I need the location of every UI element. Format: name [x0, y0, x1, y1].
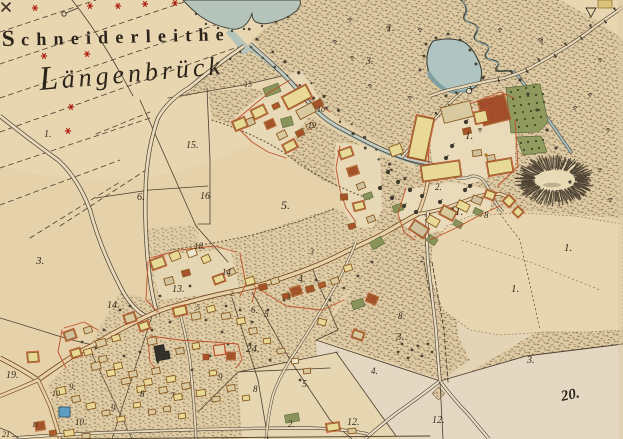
svg-text:1.: 1.	[465, 130, 473, 142]
svg-text:8: 8	[253, 384, 258, 394]
svg-text:6.: 6.	[251, 305, 258, 315]
svg-text:1: 1	[540, 37, 544, 46]
svg-text:1.: 1.	[511, 283, 519, 295]
svg-text:7: 7	[170, 391, 175, 401]
svg-text:9: 9	[111, 403, 116, 413]
svg-text:13.: 13.	[172, 284, 185, 295]
svg-text:19.: 19.	[6, 370, 19, 381]
svg-text:4.: 4.	[298, 274, 306, 285]
svg-text:10: 10	[317, 105, 325, 114]
svg-text:5.: 5.	[302, 379, 310, 390]
svg-text:15: 15	[244, 80, 252, 89]
svg-text:3.: 3.	[365, 56, 374, 67]
svg-text:1.: 1.	[455, 206, 463, 218]
svg-text:12.: 12.	[347, 417, 360, 428]
svg-text:8: 8	[140, 389, 145, 399]
svg-text:21: 21	[2, 430, 10, 439]
svg-text:1.: 1.	[387, 23, 395, 34]
svg-text:3: 3	[286, 293, 291, 302]
svg-text:5.: 5.	[281, 198, 290, 212]
svg-text:4.: 4.	[371, 366, 378, 376]
svg-text:8: 8	[484, 210, 489, 220]
svg-text:3.: 3.	[35, 255, 44, 267]
svg-text:1.: 1.	[44, 129, 52, 140]
svg-text:16: 16	[200, 191, 210, 202]
svg-text:2.: 2.	[435, 182, 442, 192]
svg-text:19,: 19,	[308, 121, 318, 130]
svg-text:18.: 18.	[194, 241, 205, 251]
svg-text:10.: 10.	[75, 417, 86, 427]
svg-text:8: 8	[398, 311, 403, 321]
svg-text:14: 14	[222, 267, 232, 277]
svg-text:9.: 9.	[69, 382, 76, 392]
svg-text:2: 2	[230, 290, 234, 298]
svg-text:11: 11	[32, 421, 38, 429]
svg-text:3.: 3.	[526, 355, 535, 366]
svg-text:24.: 24.	[246, 343, 260, 355]
svg-text:2: 2	[420, 255, 424, 264]
svg-text:6.: 6.	[137, 192, 145, 203]
svg-text:14.: 14.	[107, 300, 120, 311]
svg-text:2.: 2.	[288, 419, 295, 429]
svg-text:3: 3	[309, 247, 314, 256]
svg-text:10: 10	[52, 389, 60, 398]
svg-text:3.: 3.	[395, 331, 404, 343]
svg-text:15.: 15.	[186, 140, 199, 151]
svg-text:5: 5	[196, 303, 200, 312]
svg-text:5: 5	[264, 309, 269, 319]
svg-text:1.: 1.	[564, 242, 572, 254]
svg-text:9: 9	[218, 372, 223, 382]
svg-text:12.: 12.	[432, 415, 445, 426]
